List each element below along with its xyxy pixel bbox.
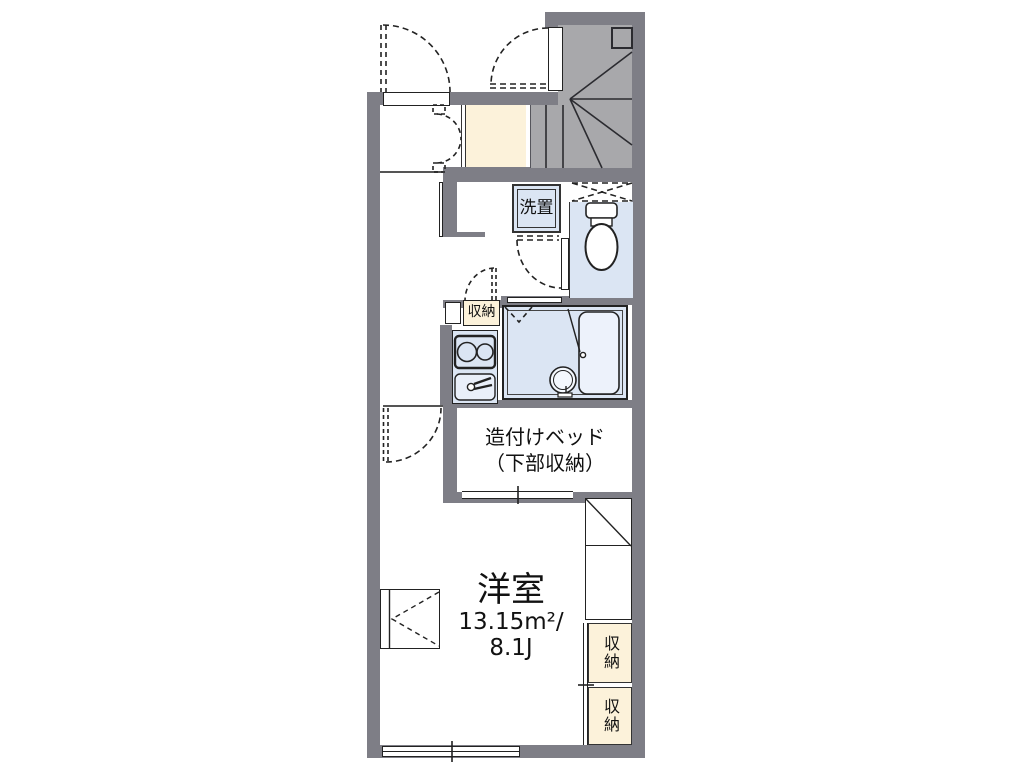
stove-icon [455,336,495,368]
staircase-steps-icon [546,28,632,168]
window-tick-marks [452,486,594,762]
room-door-swing-icon [384,408,442,462]
toilet-door-swing-icon [517,236,561,288]
stair-door-swing-icon [490,28,548,88]
washroom-door-swing-icon [465,268,496,301]
toilet-window-icon [572,183,632,201]
bath-basin-icon [550,367,576,397]
entrance-door-swing-icon [381,25,450,92]
toilet-icon [586,203,618,270]
closet-bifold-door-icon [433,105,461,172]
sink-icon [455,374,495,400]
bath-folding-door-icon [505,307,532,322]
fridge-space-diagonal [586,499,631,546]
floor-plan: 洗置 収納 収納 収納 造付けベッド （下部収納） 洋室 13.15m²/ 8.… [0,0,1016,772]
linework-layer [0,0,1016,772]
bay-window-icon [390,590,440,648]
